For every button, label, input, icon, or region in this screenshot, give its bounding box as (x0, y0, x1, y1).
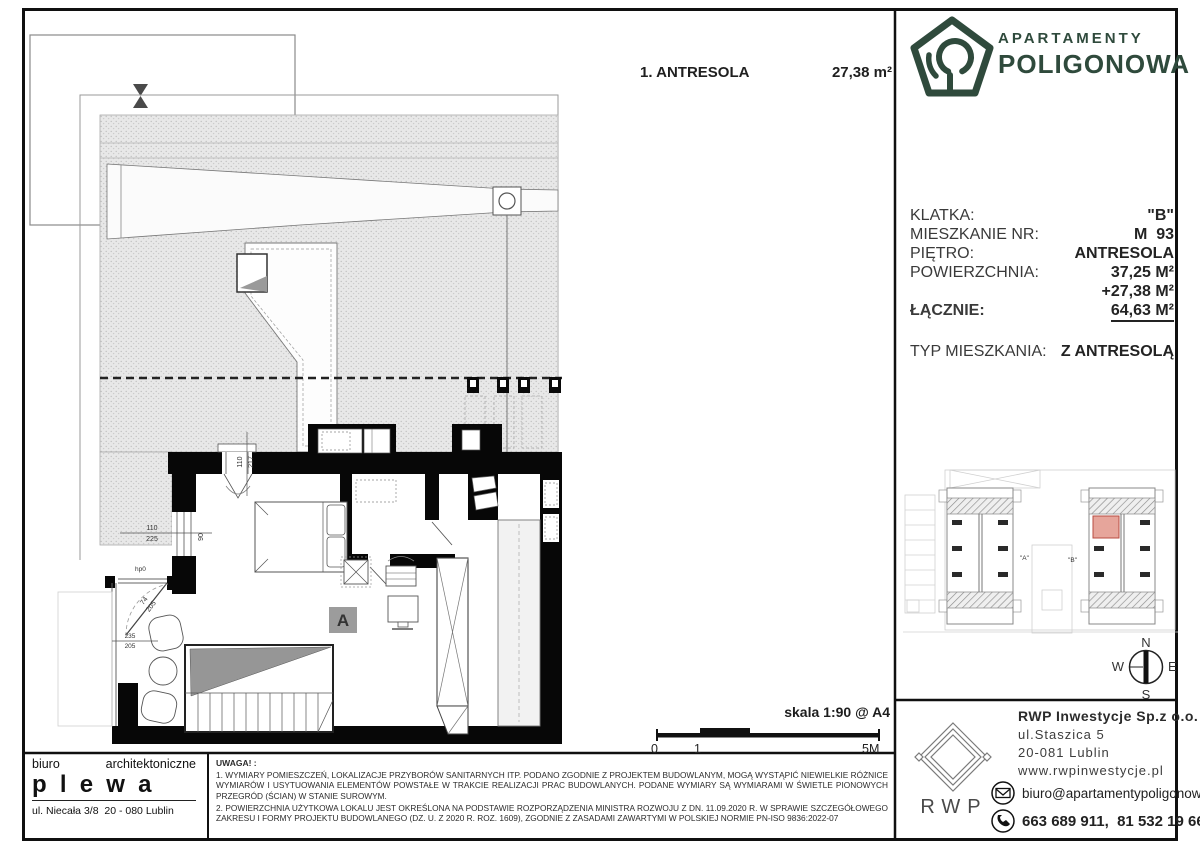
info-row-typ: TYP MIESZKANIA: Z ANTRESOLĄ (910, 342, 1174, 361)
plan-sheet: A 110 225 90 hp0 74 205 235 205 110 217 (0, 0, 1200, 849)
dining-set (139, 613, 185, 725)
dim-skylight-height: 217 (248, 456, 255, 468)
compass-icon: N E S W (1112, 635, 1177, 702)
info-row-powierzchnia2: +27,38 M² (910, 282, 1174, 301)
compass-e: E (1168, 659, 1177, 674)
klatka-label: KLATKA: (910, 206, 975, 225)
contact-icons (992, 782, 1014, 832)
architect-office-name: plewa (32, 772, 196, 798)
compass-n: N (1141, 635, 1150, 650)
drawing-title: 1. ANTRESOLA 27,38 m² (640, 64, 892, 81)
rwp-diamond-icon (915, 723, 991, 791)
developer-address2: 20-081 Lublin (1018, 745, 1178, 760)
scale-tick-1: 1 (694, 742, 701, 756)
notes-heading: UWAGA! : (216, 758, 888, 768)
bed (255, 502, 347, 572)
site-building-b (1081, 488, 1163, 624)
dim-window-height: 225 (146, 536, 158, 543)
dim-skylight-width: 110 (237, 456, 244, 467)
mieszkanie-label: MIESZKANIE NR: (910, 225, 1039, 244)
dim-window-parapet: 90 (198, 533, 205, 541)
divider (32, 800, 196, 801)
round-table (149, 657, 177, 685)
typ-value: Z ANTRESOLĄ (1061, 342, 1174, 361)
room-name: 1. ANTRESOLA (640, 64, 749, 81)
lacznie-label: ŁĄCZNIE: (910, 301, 985, 322)
desk-monitor (388, 596, 418, 629)
dim-bay-width: 235 (125, 633, 136, 640)
room-area: 27,38 m² (832, 64, 892, 81)
dim-window-width: 110 (146, 525, 157, 532)
powierzchnia-value1: 37,25 M² (1111, 263, 1174, 282)
wardrobe (437, 558, 468, 734)
info-row-lacznie: ŁĄCZNIE: 64,63 M² (910, 301, 1174, 322)
dim-bay-height: 205 (125, 643, 136, 650)
developer-block: RWP Inwestycje Sp.z o.o. ul.Staszica 5 2… (1018, 708, 1178, 778)
compass-w: W (1112, 659, 1125, 674)
phone-icon (992, 810, 1014, 832)
svg-text:A: A (337, 611, 349, 630)
site-label-b: "B" (1068, 557, 1078, 564)
washer (341, 557, 371, 587)
architect-office-type: biuro architektoniczne (32, 757, 196, 771)
powierzchnia-value2: +27,38 M² (1102, 282, 1174, 301)
info-row-mieszkanie: MIESZKANIE NR: M 93 (910, 225, 1174, 244)
dim-hp-label: hp0 (135, 566, 146, 573)
site-building-a (939, 488, 1021, 624)
scale-tick-0: 0 (651, 742, 658, 756)
developer-name: RWP Inwestycje Sp.z o.o. (1018, 708, 1178, 724)
developer-phones: 663 689 911, 81 532 19 66 (1022, 813, 1200, 830)
info-row-klatka: KLATKA: "B" (910, 206, 1174, 225)
brand-line2: POLIGONOWA (998, 49, 1180, 80)
mieszkanie-value: M 93 (1134, 225, 1174, 244)
developer-email: biuro@apartamentypoligonowa.pl (1022, 786, 1200, 801)
unit-info-panel: KLATKA: "B" MIESZKANIE NR: M 93 PIĘTRO: … (910, 206, 1174, 361)
scale-tick-5m: 5M (862, 742, 879, 756)
developer-website: www.rwpinwestycje.pl (1018, 763, 1178, 778)
scale-label: skala 1:90 @ A4 (640, 704, 890, 720)
info-row-powierzchnia: POWIERZCHNIA: 37,25 M² (910, 263, 1174, 282)
pentagon-logo-icon (914, 20, 990, 93)
unit-a-badge: A (329, 607, 357, 633)
brand-wordmark: APARTAMENTY POLIGONOWA (998, 30, 1180, 80)
scale-bar (656, 728, 880, 741)
stairs (185, 645, 333, 732)
powierzchnia-label: POWIERZCHNIA: (910, 263, 1039, 282)
pietro-value: ANTRESOLA (1074, 244, 1174, 263)
rwp-mark-text: RWP (916, 796, 992, 819)
lacznie-value: 64,63 M² (1111, 301, 1174, 322)
note-2: 2. POWIERZCHNIA UŻYTKOWA LOKALU JEST OKR… (216, 803, 888, 824)
email-icon (992, 782, 1014, 804)
klatka-value: "B" (1147, 206, 1174, 225)
site-plan: "A" "B" (903, 470, 1178, 633)
site-unit-highlight (1093, 516, 1119, 538)
compass-s: S (1142, 687, 1151, 702)
pietro-label: PIĘTRO: (910, 244, 974, 263)
notes-block: UWAGA! : 1. WYMIARY POMIESZCZEŃ, LOKALIZ… (216, 758, 888, 824)
note-1: 1. WYMIARY POMIESZCZEŃ, LOKALIZACJE PRZY… (216, 770, 888, 801)
architect-office-block: biuro architektoniczne plewa ul. Niecała… (32, 757, 196, 817)
architect-office-address: ul. Niecała 3/8 20 - 080 Lublin (32, 805, 196, 817)
site-label-a: "A" (1020, 555, 1030, 562)
typ-label: TYP MIESZKANIA: (910, 342, 1047, 361)
info-row-pietro: PIĘTRO: ANTRESOLA (910, 244, 1174, 263)
brand-line1: APARTAMENTY (998, 30, 1180, 47)
developer-address1: ul.Staszica 5 (1018, 727, 1178, 742)
